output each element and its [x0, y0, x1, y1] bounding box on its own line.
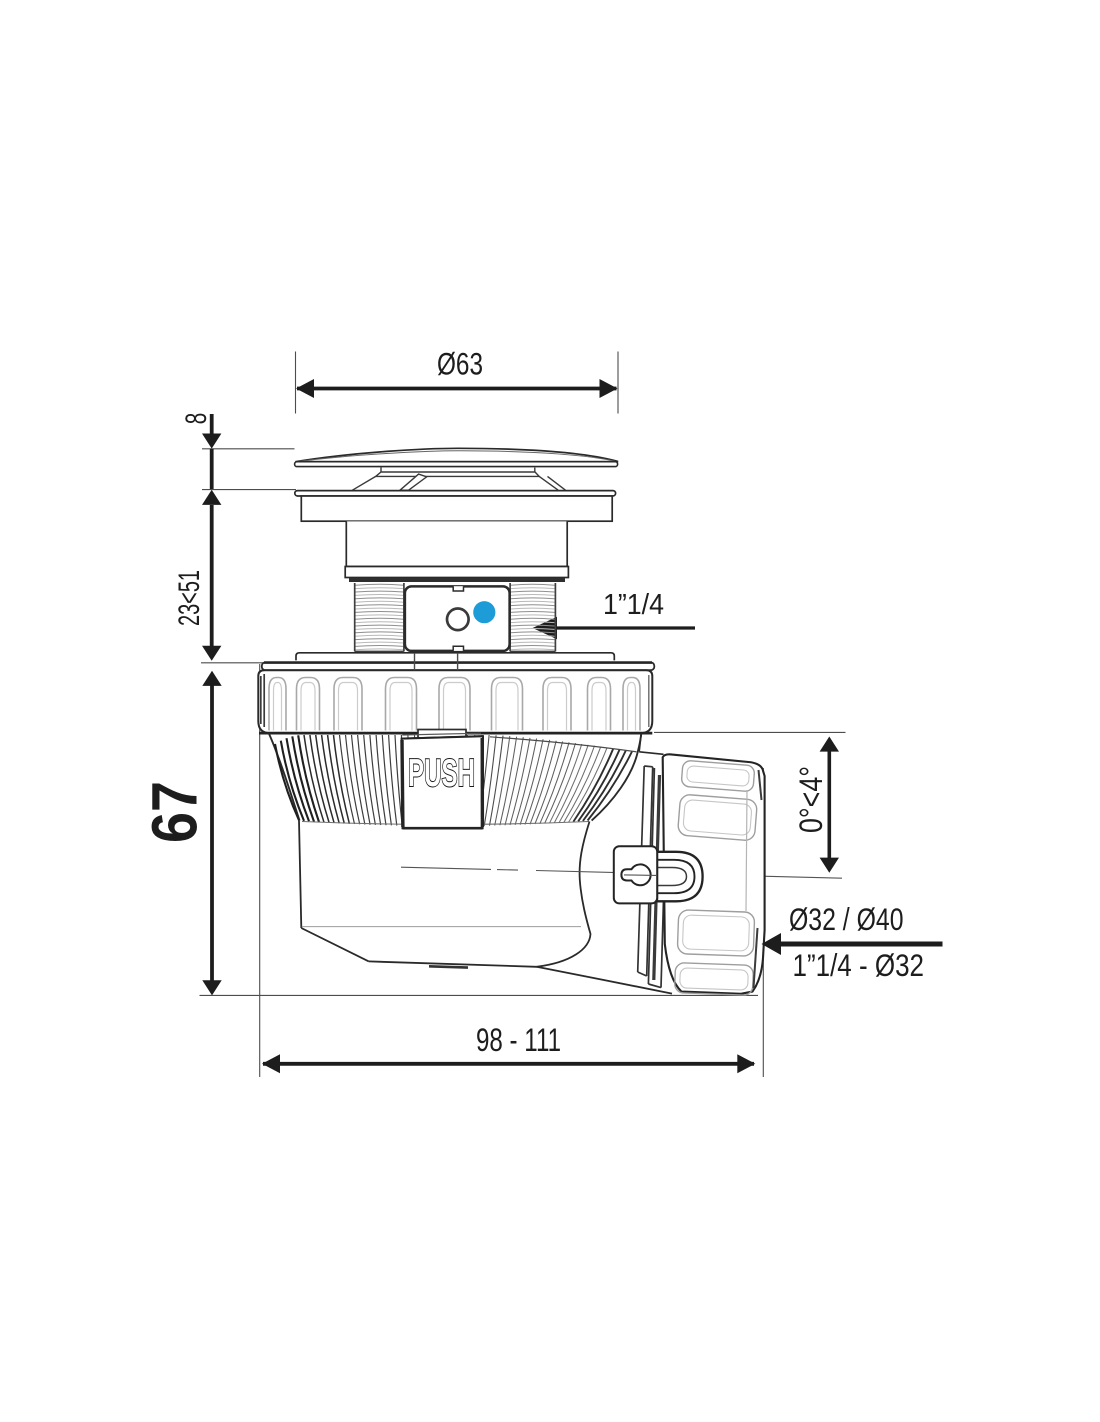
svg-text:1”1/4: 1”1/4 [603, 589, 664, 621]
svg-text:Ø63: Ø63 [437, 346, 483, 382]
svg-text:23<51: 23<51 [173, 570, 206, 626]
svg-text:PUSH: PUSH [408, 752, 475, 795]
svg-text:0°<4°: 0°<4° [793, 766, 829, 833]
svg-text:8: 8 [180, 413, 213, 425]
svg-text:Ø32 / Ø40: Ø32 / Ø40 [789, 901, 904, 937]
svg-text:67: 67 [139, 781, 211, 843]
svg-text:1”1/4 - Ø32: 1”1/4 - Ø32 [793, 947, 925, 983]
svg-text:98 - 111: 98 - 111 [476, 1022, 561, 1058]
